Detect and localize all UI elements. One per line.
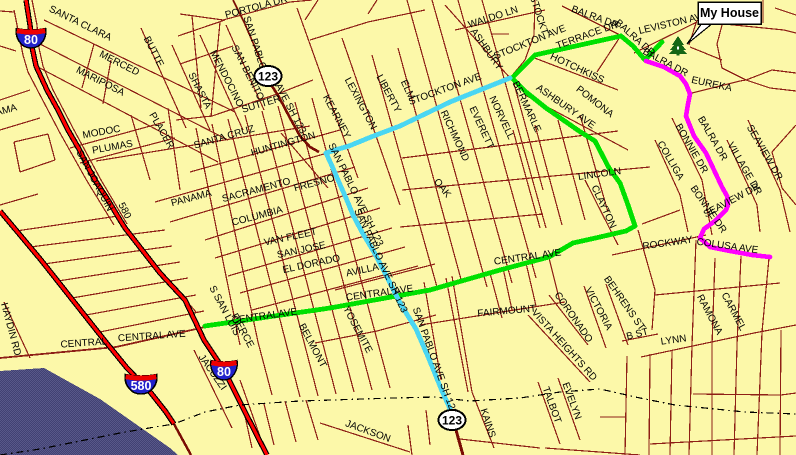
svg-text:80: 80 <box>217 365 231 379</box>
svg-text:123: 123 <box>442 414 462 428</box>
svg-text:80: 80 <box>24 33 38 47</box>
svg-text:580: 580 <box>131 379 152 393</box>
svg-text:123: 123 <box>258 70 278 84</box>
svg-text:My House: My House <box>700 6 759 20</box>
